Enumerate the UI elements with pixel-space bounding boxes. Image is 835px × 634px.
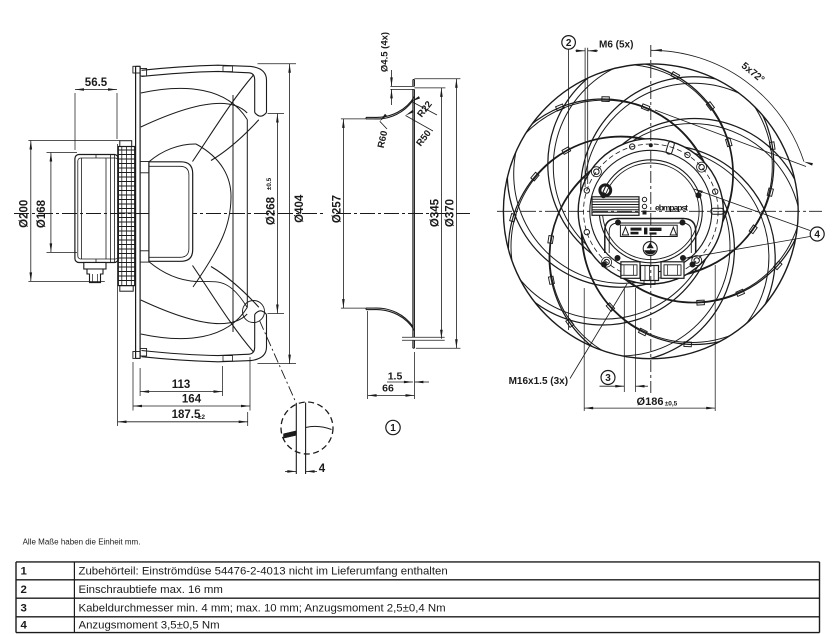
svg-text:4: 4: [21, 620, 28, 632]
svg-text:R60: R60: [376, 130, 390, 149]
svg-text:1: 1: [21, 566, 28, 578]
svg-text:66: 66: [382, 383, 394, 395]
svg-text:Ø345: Ø345: [430, 198, 442, 227]
svg-text:2: 2: [566, 38, 572, 49]
svg-text:Anzugsmoment 3,5±0,5 Nm: Anzugsmoment 3,5±0,5 Nm: [79, 620, 220, 632]
svg-text:3: 3: [21, 602, 27, 614]
svg-text:3: 3: [605, 373, 611, 384]
svg-text:M16x1.5 (3x): M16x1.5 (3x): [509, 376, 568, 387]
svg-text:Zubehörteil: Einströmdüse 5447: Zubehörteil: Einströmdüse 54476-2-4013 n…: [79, 566, 448, 578]
svg-text:Alle Maße haben die Einheit mm: Alle Maße haben die Einheit mm.: [23, 538, 141, 547]
svg-text:±2: ±2: [198, 414, 205, 421]
svg-text:±0.5: ±0.5: [266, 177, 273, 190]
svg-text:R50: R50: [414, 128, 433, 149]
svg-text:1: 1: [390, 423, 396, 434]
svg-text:56.5: 56.5: [85, 77, 108, 89]
svg-text:Ø168: Ø168: [36, 199, 48, 228]
svg-text:1.5: 1.5: [388, 371, 403, 383]
svg-text:Ø268: Ø268: [266, 196, 278, 225]
svg-text:113: 113: [172, 379, 191, 391]
svg-text:4: 4: [319, 463, 326, 475]
svg-text:164: 164: [182, 394, 202, 406]
svg-text:Ø186: Ø186: [637, 396, 664, 408]
svg-text:Ø4.5 (4x): Ø4.5 (4x): [380, 32, 391, 72]
svg-text:Ø370: Ø370: [445, 199, 457, 227]
svg-text:R22: R22: [415, 99, 434, 120]
svg-text:5x72°: 5x72°: [739, 61, 766, 86]
svg-text:4: 4: [814, 230, 820, 241]
svg-text:Kabeldurchmesser min. 4 mm; ma: Kabeldurchmesser min. 4 mm; max. 10 mm; …: [79, 602, 446, 614]
svg-text:Ø257: Ø257: [332, 195, 344, 223]
svg-text:187.5: 187.5: [172, 409, 201, 421]
svg-text:Einschraubtiefe max. 16 mm: Einschraubtiefe max. 16 mm: [79, 584, 223, 596]
svg-text:±0,5: ±0,5: [665, 401, 678, 408]
svg-text:M6 (5x): M6 (5x): [599, 40, 633, 51]
svg-text:Ø200: Ø200: [19, 200, 31, 228]
svg-text:Ø404: Ø404: [294, 194, 306, 223]
svg-text:2: 2: [21, 584, 27, 596]
